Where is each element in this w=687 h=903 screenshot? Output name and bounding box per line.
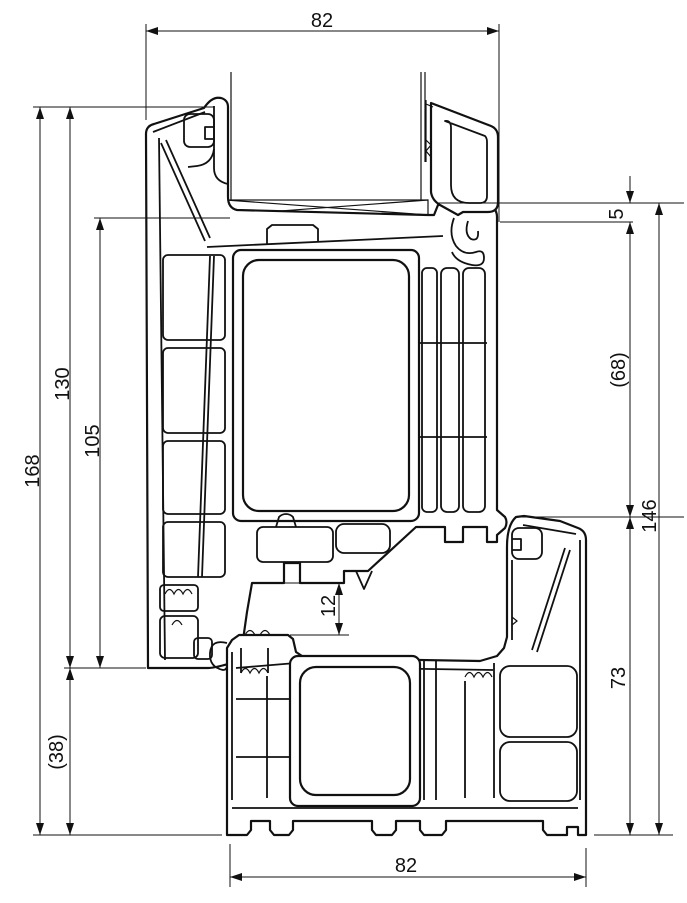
- dim-sash-height: 130: [52, 107, 74, 668]
- dim-label-overall-height: 168: [22, 454, 44, 487]
- drawing-canvas: 82 168 130 105 (3: [0, 0, 687, 903]
- dim-sash-inner-height: 105: [82, 218, 104, 668]
- dim-label-gap-top: 5: [606, 208, 628, 219]
- dim-label-sash-inner-height: 105: [82, 424, 104, 457]
- dim-rebate-step: 12: [252, 583, 349, 635]
- dim-label-rebate-step: 12: [318, 595, 340, 617]
- dim-sash-overlap: (68): [608, 222, 634, 517]
- dim-label-sash-height: 130: [52, 367, 74, 400]
- dim-label-lower-extension: (38): [46, 734, 68, 770]
- dim-lower-extension: (38): [46, 668, 74, 835]
- dim-overall-height: 168: [22, 107, 44, 835]
- dim-label-frame-height: 73: [608, 667, 630, 689]
- glass-pane: [231, 72, 425, 200]
- dim-frame-total-height: 146: [639, 203, 663, 835]
- glazing-bead-outline: [431, 103, 498, 215]
- dim-frame-height: 73: [608, 517, 634, 835]
- dim-label-top-width: 82: [311, 10, 333, 32]
- dim-label-frame-total-height: 146: [639, 499, 661, 532]
- dim-label-bottom-width: 82: [395, 855, 417, 877]
- dim-bottom-width: 82: [230, 844, 586, 887]
- profile-drawing: 82 168 130 105 (3: [0, 0, 687, 903]
- glazing-bead: [426, 100, 498, 215]
- dim-label-sash-overlap: (68): [608, 352, 630, 388]
